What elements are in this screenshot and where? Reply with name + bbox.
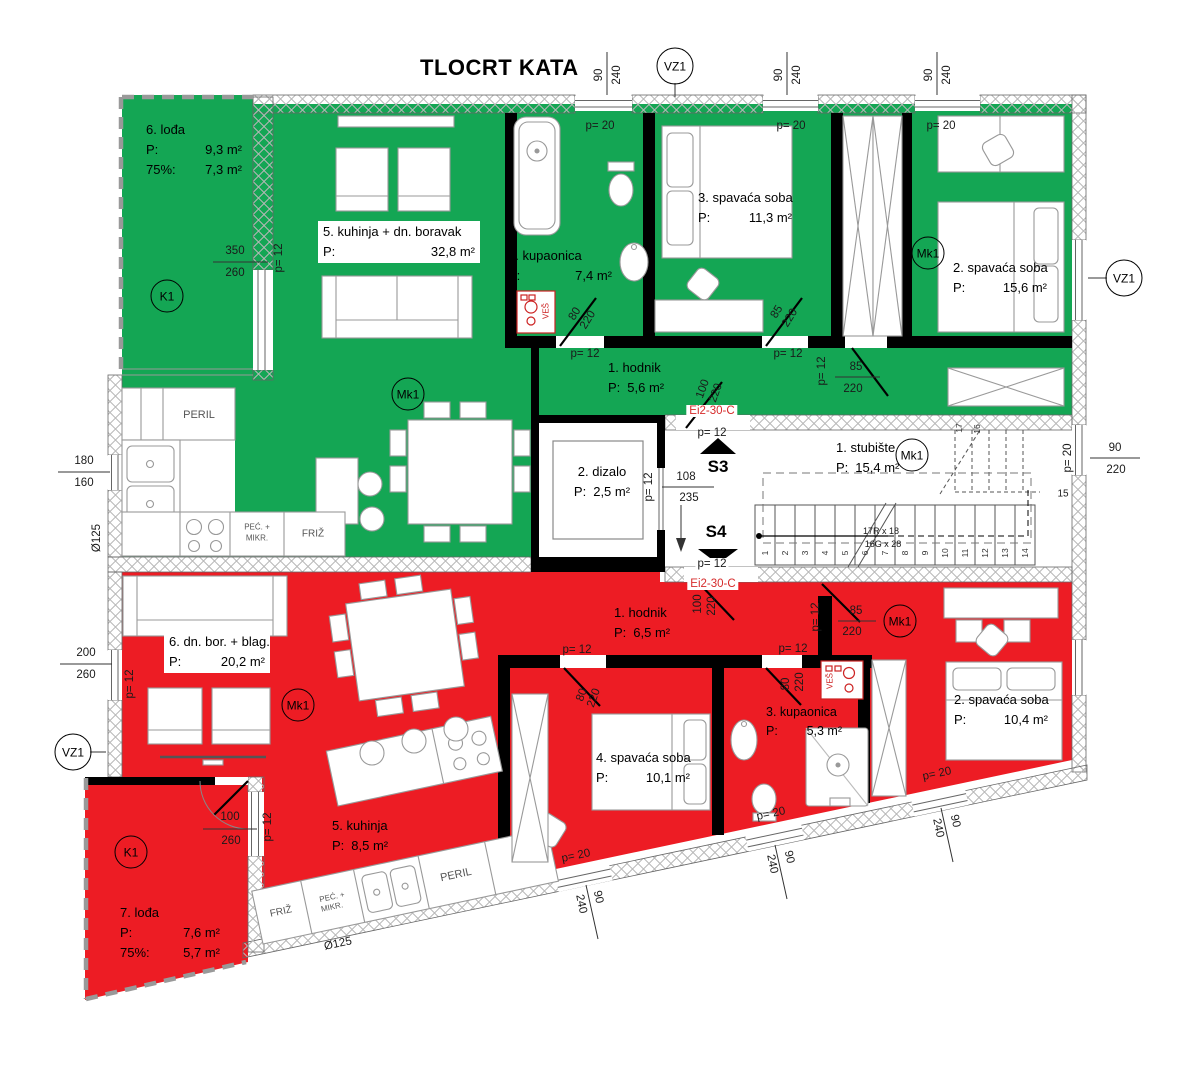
elevator-car (553, 441, 643, 539)
floor-plan-canvas: TLOCRT KATA 6. lođa P:9,3 m² 75%:7,3 m² … (0, 0, 1200, 1080)
washer-red (821, 661, 863, 699)
washer-green (517, 291, 555, 333)
floor-plan-drawing (0, 0, 1200, 1080)
